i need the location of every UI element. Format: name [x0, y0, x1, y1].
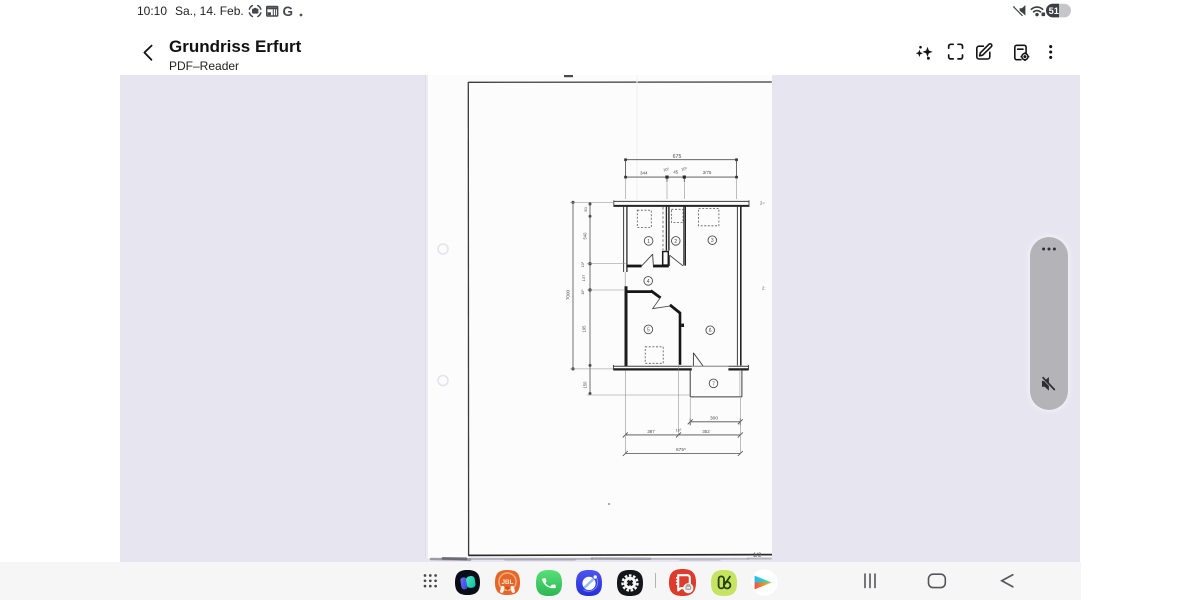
svg-text:3: 3 — [711, 238, 714, 244]
svg-text:45: 45 — [673, 170, 678, 175]
svg-text:4: 4 — [647, 279, 650, 285]
svg-text:10⁵: 10⁵ — [581, 261, 585, 267]
svg-text:675⁵: 675⁵ — [676, 447, 686, 453]
svg-text:3/75: 3/75 — [703, 170, 712, 175]
svg-text:675: 675 — [673, 154, 682, 160]
svg-text:1: 1 — [647, 239, 650, 245]
svg-text:7: 7 — [712, 381, 715, 387]
svg-text:150: 150 — [583, 381, 588, 389]
svg-text:10⁵: 10⁵ — [581, 289, 585, 295]
svg-text:2=: 2= — [760, 201, 765, 206]
svg-text:G: G — [283, 4, 294, 19]
svg-text:6: 6 — [709, 328, 712, 334]
svg-text:2:: 2: — [762, 286, 766, 291]
svg-text:51: 51 — [1049, 6, 1059, 16]
svg-text:352: 352 — [702, 429, 710, 434]
svg-text:JBL: JBL — [501, 579, 513, 586]
svg-text:195: 195 — [582, 325, 587, 333]
svg-text:344: 344 — [640, 170, 648, 175]
svg-text:540: 540 — [583, 232, 588, 240]
svg-text:5: 5 — [647, 327, 650, 333]
svg-text:387: 387 — [647, 429, 655, 434]
svg-text:50: 50 — [583, 207, 588, 212]
svg-text:10⁵: 10⁵ — [676, 429, 682, 433]
svg-text:300: 300 — [710, 415, 718, 421]
svg-text:2: 2 — [674, 239, 677, 245]
svg-text:7000: 7000 — [566, 289, 571, 300]
svg-text:137: 137 — [581, 274, 586, 281]
